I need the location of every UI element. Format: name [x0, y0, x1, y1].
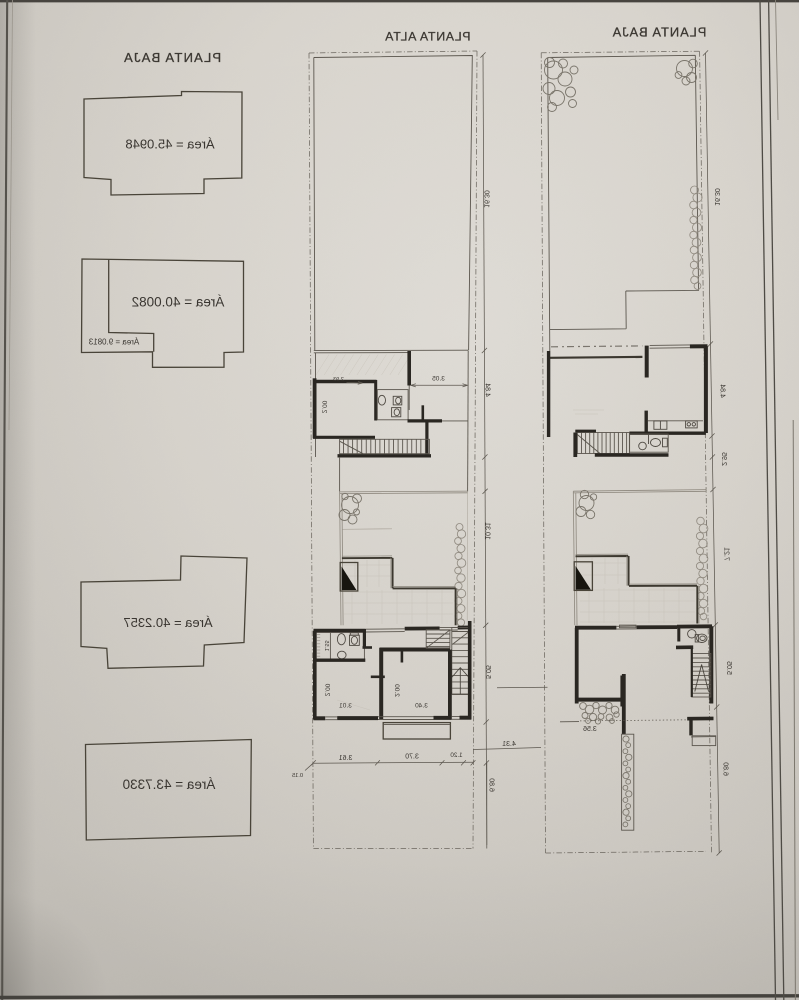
svg-text:6.80: 6.80	[722, 762, 729, 776]
svg-text:16.30: 16.30	[713, 188, 720, 206]
svg-text:Área = 40.2357: Área = 40.2357	[123, 615, 212, 630]
svg-text:Área = 45.0948: Área = 45.0948	[125, 137, 214, 152]
svg-text:6.80: 6.80	[487, 778, 494, 792]
svg-text:3.61: 3.61	[339, 755, 353, 762]
svg-text:1.20: 1.20	[450, 752, 463, 759]
svg-text:PLANTA BAJA: PLANTA BAJA	[612, 25, 707, 40]
svg-text:3.01: 3.01	[339, 703, 352, 710]
svg-text:2.95: 2.95	[720, 452, 727, 466]
svg-text:4.31: 4.31	[502, 741, 516, 748]
svg-text:PLANTA BAJA: PLANTA BAJA	[123, 50, 221, 65]
svg-text:2.00: 2.00	[323, 683, 330, 696]
svg-text:Área = 40.0082: Área = 40.0082	[132, 295, 225, 310]
svg-text:Área = 9.0813: Área = 9.0813	[88, 338, 139, 347]
svg-text:1.55: 1.55	[323, 640, 329, 651]
svg-text:2.93: 2.93	[333, 377, 344, 383]
svg-text:16.30: 16.30	[482, 190, 489, 208]
svg-text:5.05: 5.05	[484, 665, 491, 679]
svg-text:5.05: 5.05	[725, 661, 732, 675]
svg-text:7.21: 7.21	[723, 547, 730, 561]
svg-text:Área = 43.7330: Área = 43.7330	[123, 777, 216, 792]
svg-text:4.84: 4.84	[483, 383, 490, 397]
svg-text:3.56: 3.56	[583, 726, 597, 733]
svg-text:3.70: 3.70	[405, 754, 419, 761]
svg-text:10.31: 10.31	[484, 522, 491, 540]
svg-text:2.00: 2.00	[321, 400, 328, 413]
svg-text:3.05: 3.05	[432, 376, 445, 383]
svg-text:0.15: 0.15	[292, 773, 303, 779]
svg-text:3.40: 3.40	[415, 703, 428, 710]
svg-text:PLANTA ALTA: PLANTA ALTA	[384, 30, 470, 44]
svg-text:4.84: 4.84	[719, 384, 726, 398]
svg-text:2.00: 2.00	[393, 684, 400, 697]
